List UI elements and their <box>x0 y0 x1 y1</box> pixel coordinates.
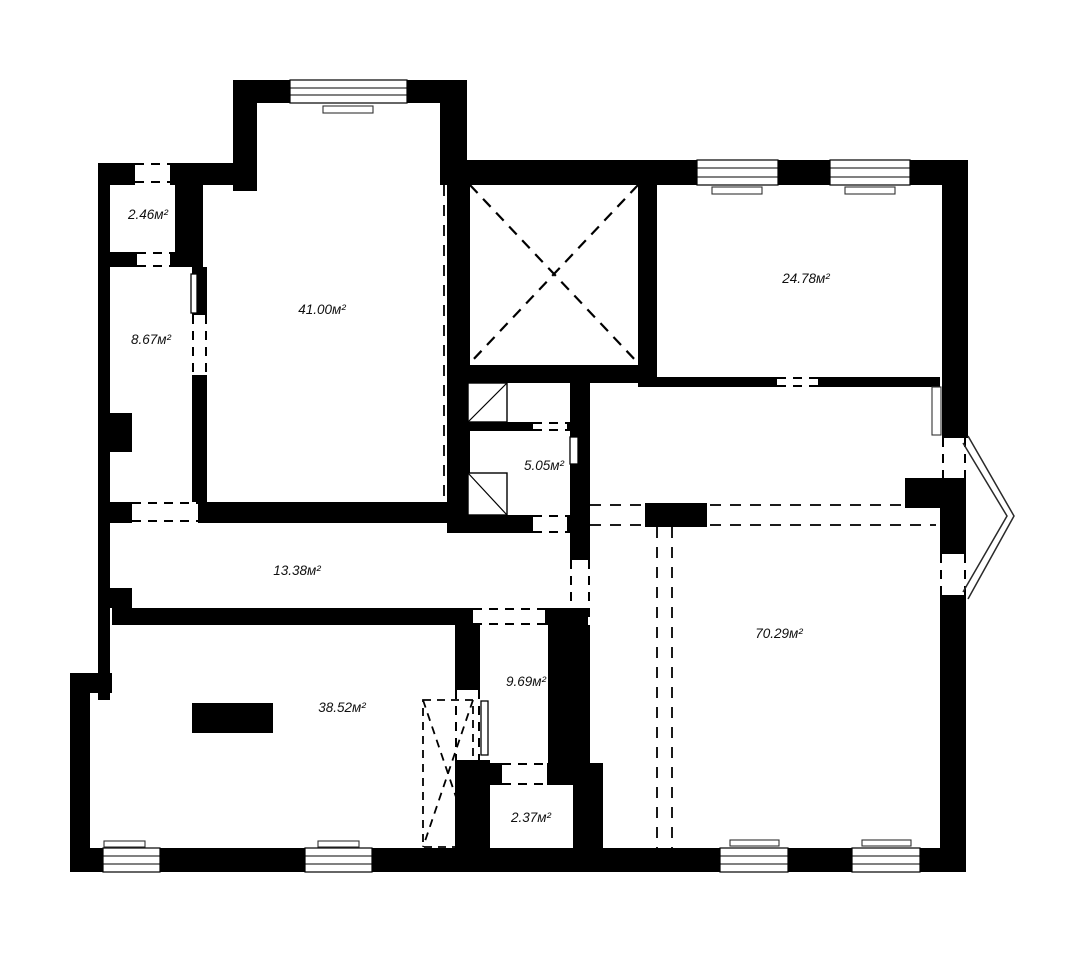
kitchen-island <box>192 703 273 733</box>
room-area-label: 13.38м² <box>273 563 321 578</box>
walls-layer <box>70 80 968 872</box>
window <box>852 840 920 872</box>
window <box>305 841 372 872</box>
door-swing <box>468 473 507 515</box>
room-area-label: 8.67м² <box>131 332 172 347</box>
window <box>932 387 941 435</box>
floor-plan-svg: 2.46м² 8.67м² 41.00м² 24.78м² 5.05м² 13.… <box>0 0 1080 959</box>
window <box>830 160 910 194</box>
door-leaf <box>481 701 488 755</box>
window <box>720 840 788 872</box>
room-area-label: 70.29м² <box>755 626 803 641</box>
floor-plan: 2.46м² 8.67м² 41.00м² 24.78м² 5.05м² 13.… <box>0 0 1080 959</box>
room-area-label: 24.78м² <box>781 271 830 286</box>
shaft-x-symbol <box>470 185 638 363</box>
room-area-label: 2.37м² <box>510 810 552 825</box>
door-leaf <box>570 437 578 464</box>
bay-window <box>963 436 1014 599</box>
door-leaf <box>191 274 197 313</box>
window <box>697 160 778 194</box>
window <box>103 841 160 872</box>
room-area-label: 2.46м² <box>127 207 169 222</box>
windows-layer <box>103 80 941 872</box>
window <box>290 80 407 113</box>
room-area-label: 38.52м² <box>318 700 366 715</box>
room-area-label: 5.05м² <box>524 458 565 473</box>
room-area-label: 9.69м² <box>506 674 547 689</box>
door-swing <box>468 383 507 422</box>
room-area-label: 41.00м² <box>298 302 346 317</box>
